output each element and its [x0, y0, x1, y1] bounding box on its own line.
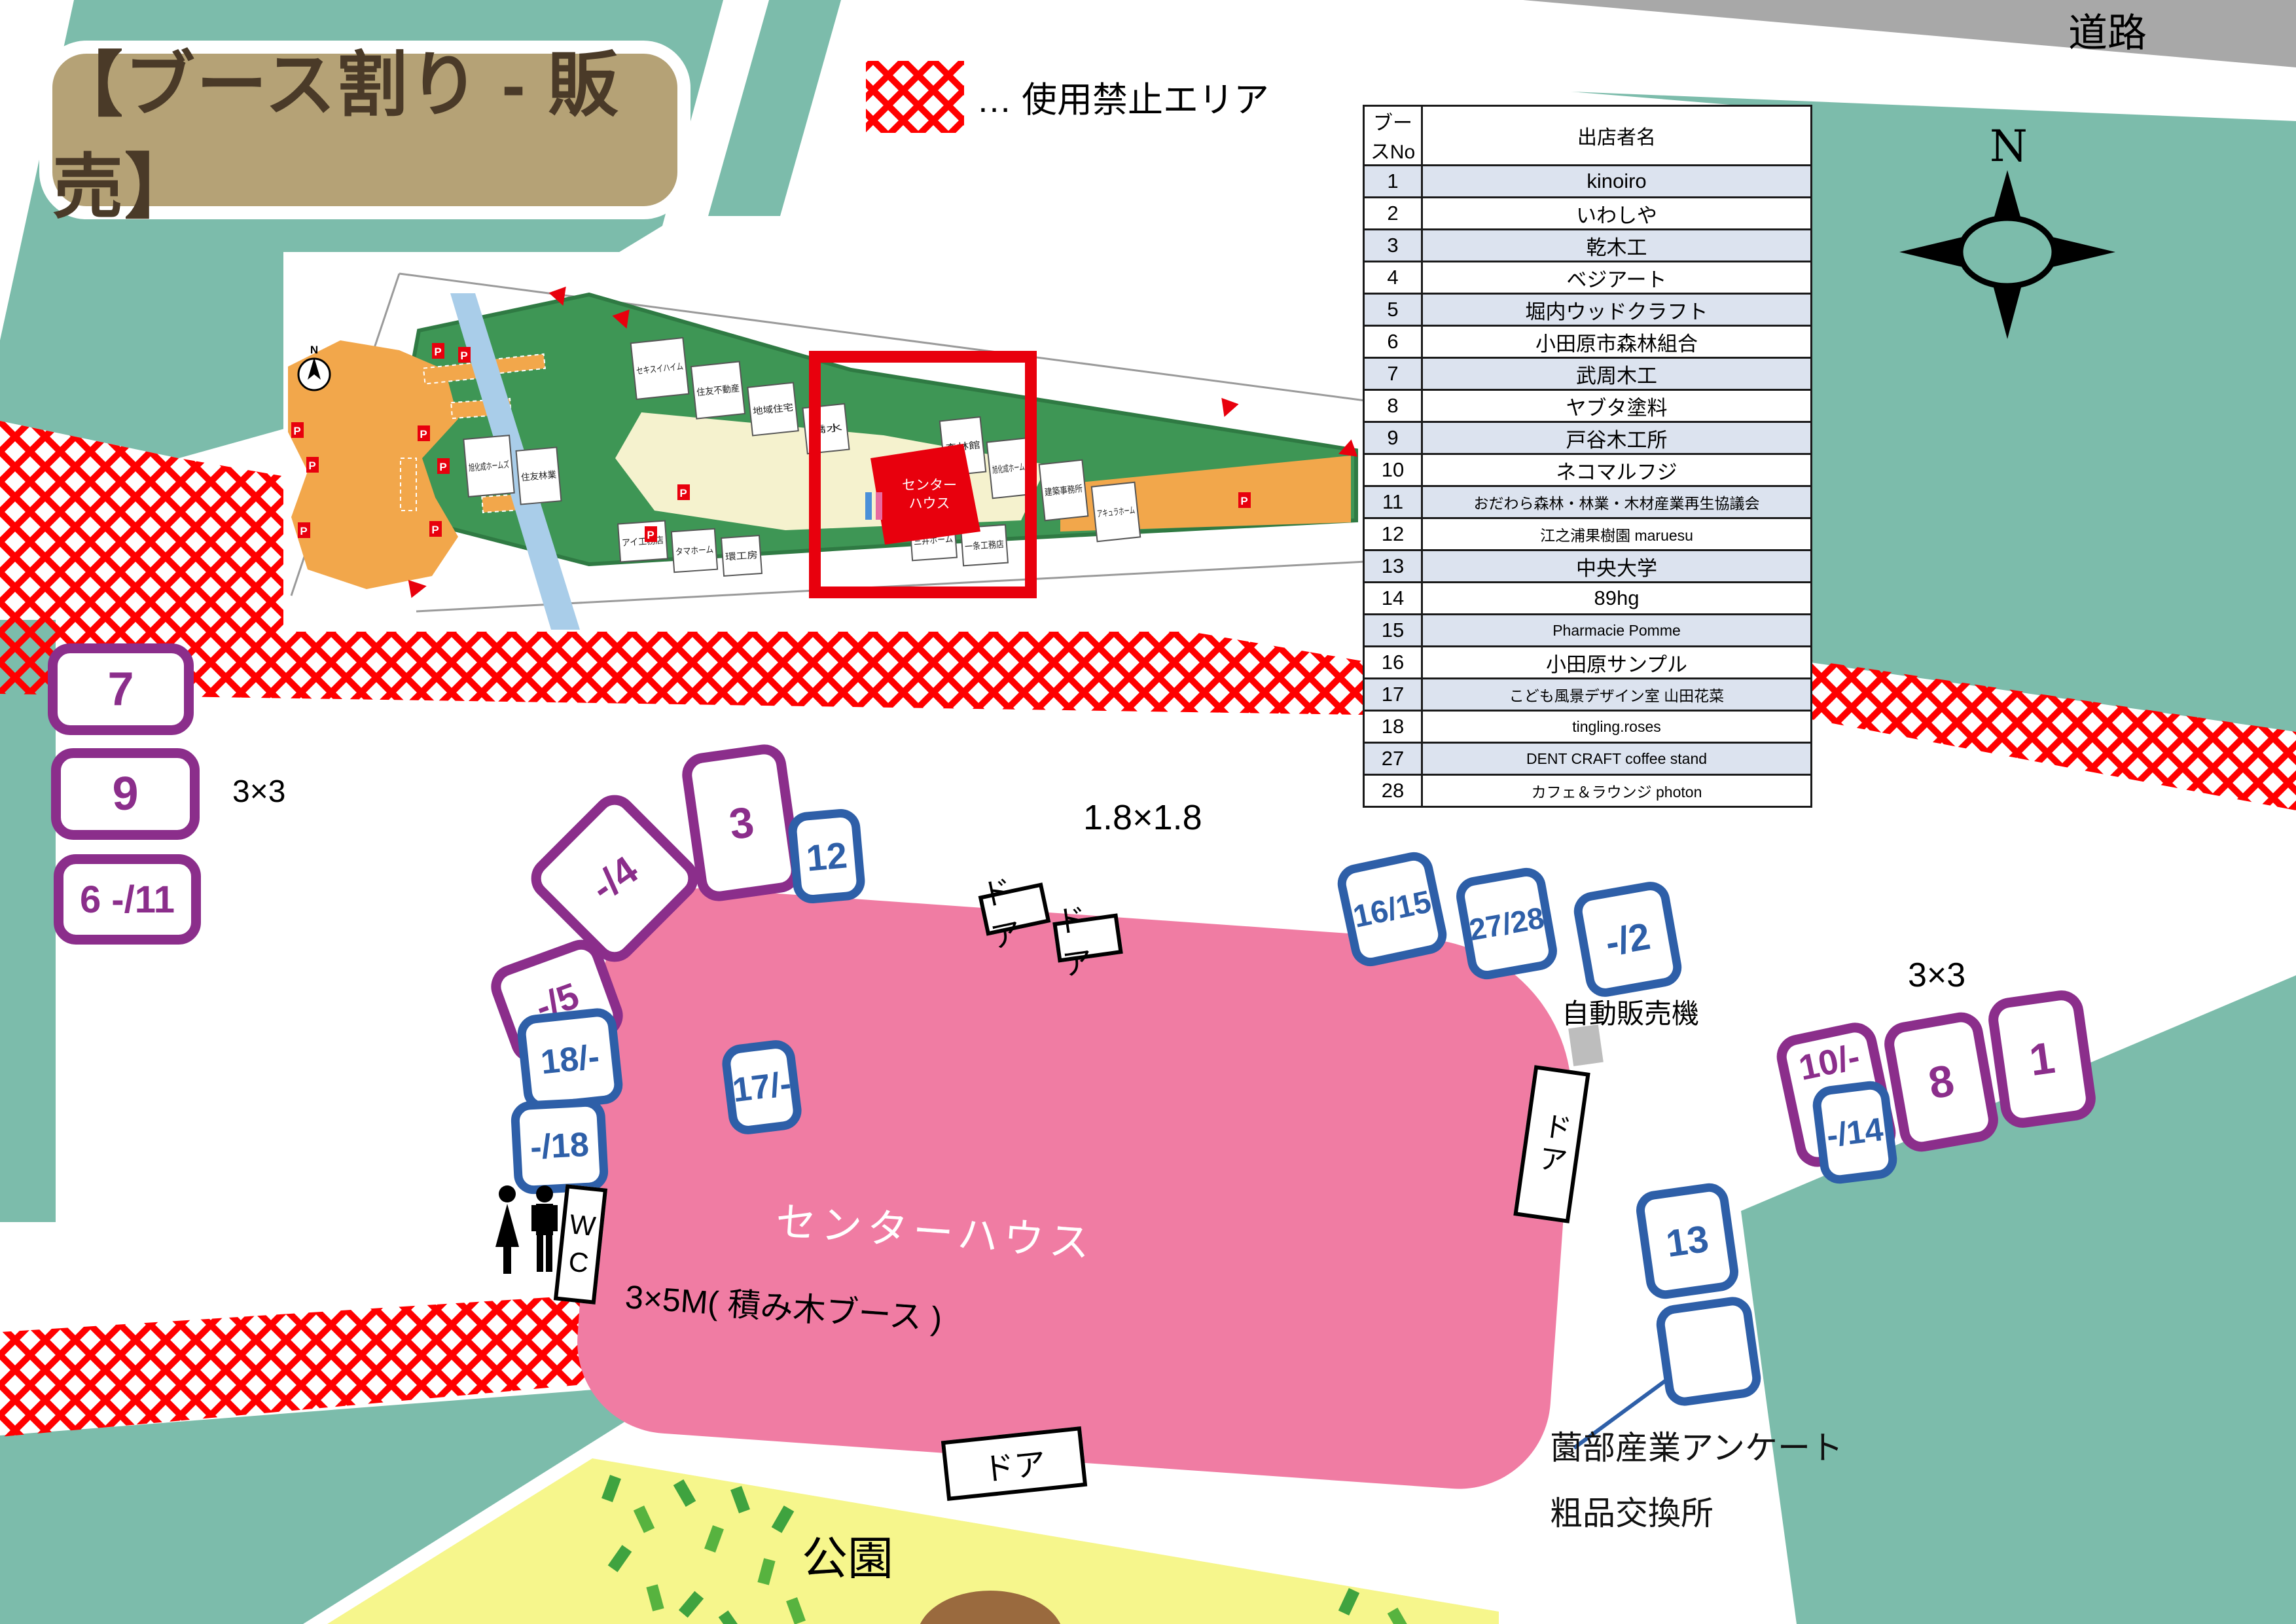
booth-no: 12	[1364, 518, 1422, 550]
booth-3: 3	[679, 742, 804, 904]
booth-12: 12	[787, 807, 867, 905]
door-label: ドア	[1053, 892, 1122, 985]
booth-no: 3	[1364, 230, 1422, 262]
booth-no: 13	[1364, 550, 1422, 583]
map-figure-female-icon	[876, 492, 882, 520]
booth-no: 9	[1364, 422, 1422, 454]
vendor-table: ブースNo 出店者名 1kinoiro2いわしや3乾木工4ベジアート5堀内ウッド…	[1363, 105, 1812, 808]
booth-no: 11	[1364, 486, 1422, 518]
booth-no: 4	[1364, 262, 1422, 294]
vendor-name: kinoiro	[1422, 166, 1812, 198]
booth-27-28: 27/28	[1453, 865, 1560, 983]
booth-label: 9	[112, 767, 138, 821]
booth-no: 15	[1364, 615, 1422, 647]
vendor-name: DENT CRAFT coffee stand	[1422, 743, 1812, 775]
vendor-name: ヤブタ塗料	[1422, 390, 1812, 422]
booth-label: 18/-	[539, 1037, 601, 1082]
parking-icon: P	[434, 346, 441, 358]
vendor-name: tingling.roses	[1422, 711, 1812, 743]
booth-no: 1	[1364, 166, 1422, 198]
map-center-house	[870, 444, 980, 545]
booth-18b: -/18	[510, 1097, 609, 1195]
table-row: 7武周木工	[1364, 358, 1812, 390]
booth-label: 17/-	[730, 1064, 793, 1110]
booth-label: -/4	[583, 847, 647, 911]
vending-machine	[1568, 1024, 1604, 1066]
booth-no: 17	[1364, 679, 1422, 711]
vendor-name: Pharmacie Pomme	[1422, 615, 1812, 647]
vendor-name: 小田原市森林組合	[1422, 326, 1812, 358]
booth-empty	[1654, 1295, 1763, 1409]
table-row: 9戸谷木工所	[1364, 422, 1812, 454]
parking-icon: P	[431, 524, 439, 536]
page-title: 【ブース割り - 販売】	[52, 28, 677, 232]
inset-map: セキスイハイム 住友不動産 地域住宅 橋水 森林館 旭化成ホームズ 建築事務所 …	[283, 252, 1368, 632]
table-row: 1489hg	[1364, 583, 1812, 615]
vendor-name: 89hg	[1422, 583, 1812, 615]
vendor-name: 中央大学	[1422, 550, 1812, 583]
vendor-name: おだわら森林・林業・木材産業再生協議会	[1422, 486, 1812, 518]
table-row: 3乾木工	[1364, 230, 1812, 262]
booth-label: 12	[804, 833, 849, 879]
restroom-icons	[490, 1185, 563, 1278]
vendor-name: カフェ＆ラウンジ photon	[1422, 775, 1812, 807]
vendor-name: 乾木工	[1422, 230, 1812, 262]
table-row: 15Pharmacie Pomme	[1364, 615, 1812, 647]
table-row: 4ベジアート	[1364, 262, 1812, 294]
booth-9: 9	[51, 748, 200, 840]
road-label: 道路	[2068, 1, 2147, 58]
size-label-1-8: 1.8×1.8	[1083, 797, 1202, 838]
booth-18a: 18/-	[516, 1006, 625, 1112]
size-label-3x3-right: 3×3	[1908, 956, 1965, 995]
booth-no: 7	[1364, 358, 1422, 390]
table-row: 27DENT CRAFT coffee stand	[1364, 743, 1812, 775]
table-row: 28カフェ＆ラウンジ photon	[1364, 775, 1812, 807]
table-row: 8ヤブタ塗料	[1364, 390, 1812, 422]
booth-17: 17/-	[720, 1038, 804, 1137]
booth-label: -/18	[529, 1125, 590, 1168]
door-top-1: ドア	[978, 882, 1051, 935]
vendor-name: 小田原サンプル	[1422, 647, 1812, 679]
booth-label: 7	[107, 662, 134, 716]
svg-text:N: N	[310, 344, 318, 356]
table-row: 16小田原サンプル	[1364, 647, 1812, 679]
parking-icon: P	[679, 487, 687, 499]
vendor-name: 戸谷木工所	[1422, 422, 1812, 454]
door-top-2: ドア	[1052, 913, 1123, 962]
booth-no: 6	[1364, 326, 1422, 358]
annotation-line1: 薗部産業アンケート	[1550, 1422, 1843, 1469]
vendor-name: いわしや	[1422, 198, 1812, 230]
booth-2: -/2	[1571, 878, 1685, 1000]
table-row: 18tingling.roses	[1364, 711, 1812, 743]
table-row: 13中央大学	[1364, 550, 1812, 583]
booth-no: 14	[1364, 583, 1422, 615]
booth-label: -/2	[1602, 914, 1653, 965]
parking-icon: P	[308, 460, 315, 472]
vendor-name: ネコマルフジ	[1422, 454, 1812, 486]
booth-6-11: 6 -/11	[54, 854, 201, 945]
parking-icon: P	[647, 529, 654, 541]
booth-label: 13	[1663, 1216, 1711, 1265]
map-center-house-label: ハウス	[909, 496, 950, 511]
booth-14: -/14	[1810, 1079, 1899, 1185]
door-label: ドア	[1526, 1109, 1577, 1180]
booth-label: -/14	[1825, 1110, 1886, 1155]
female-icon	[495, 1185, 519, 1274]
table-row: 11おだわら森林・林業・木材産業再生協議会	[1364, 486, 1812, 518]
parking-icon: P	[300, 525, 307, 537]
booth-label: 16/15	[1350, 884, 1435, 935]
legend-swatch	[866, 61, 964, 133]
table-row: 10ネコマルフジ	[1364, 454, 1812, 486]
vendor-name: 武周木工	[1422, 358, 1812, 390]
booth-no: 16	[1364, 647, 1422, 679]
table-row: 2いわしや	[1364, 198, 1812, 230]
legend-label: … 使用禁止エリア	[977, 71, 1269, 122]
parking-icon: P	[420, 428, 427, 441]
park-label: 公園	[802, 1522, 893, 1588]
booth-label: 10/-	[1795, 1036, 1863, 1089]
table-row: 12江之浦果樹園 maruesu	[1364, 518, 1812, 550]
male-icon	[531, 1185, 558, 1272]
map-center-house-label: センター	[902, 478, 957, 493]
booth-7: 7	[48, 643, 194, 735]
parking-icon: P	[439, 461, 446, 473]
vendor-name: 堀内ウッドクラフト	[1422, 294, 1812, 326]
booth-no: 18	[1364, 711, 1422, 743]
table-row: 5堀内ウッドクラフト	[1364, 294, 1812, 326]
vendor-name: ベジアート	[1422, 262, 1812, 294]
booth-label: 8	[1925, 1055, 1958, 1109]
booth-no: 8	[1364, 390, 1422, 422]
table-row: 1kinoiro	[1364, 166, 1812, 198]
parking-icon: P	[293, 425, 300, 437]
booth-no: 27	[1364, 743, 1422, 775]
col-header-vendor: 出店者名	[1422, 106, 1812, 166]
table-header-row: ブースNo 出店者名	[1364, 106, 1812, 166]
booth-no: 2	[1364, 198, 1422, 230]
compass-n-label: N	[1990, 121, 2028, 171]
booth-no: 28	[1364, 775, 1422, 807]
annotation-line2: 粗品交換所	[1550, 1487, 1713, 1534]
poster: セキスイハイム 住友不動産 地域住宅 橋水 森林館 旭化成ホームズ 建築事務所 …	[0, 0, 2296, 1624]
booth-13: 13	[1634, 1181, 1741, 1301]
parking-icon: P	[1240, 495, 1247, 507]
booth-label: 1	[2026, 1032, 2058, 1087]
booth-label: 27/28	[1467, 899, 1547, 947]
vending-machine-label: 自動販売機	[1562, 992, 1699, 1032]
booth-label: 6 -/11	[80, 878, 175, 922]
booth-1: 1	[1986, 988, 2098, 1130]
map-figure-male-icon	[865, 492, 872, 520]
door-label: ドア	[980, 1437, 1048, 1490]
road-band	[1523, 0, 2296, 67]
table-row: 17こども風景デザイン室 山田花菜	[1364, 679, 1812, 711]
booth-label: 3	[726, 797, 757, 849]
size-label-3x3-left: 3×3	[232, 774, 285, 810]
table-row: 6小田原市森林組合	[1364, 326, 1812, 358]
vendor-name: 江之浦果樹園 maruesu	[1422, 518, 1812, 550]
booth-no: 5	[1364, 294, 1422, 326]
teal-sliver-top	[708, 0, 841, 216]
col-header-booth-no: ブースNo	[1364, 106, 1422, 166]
parking-icon: P	[460, 350, 467, 362]
booth-no: 10	[1364, 454, 1422, 486]
title-box: 【ブース割り - 販売】	[39, 41, 691, 219]
vendor-name: こども風景デザイン室 山田花菜	[1422, 679, 1812, 711]
